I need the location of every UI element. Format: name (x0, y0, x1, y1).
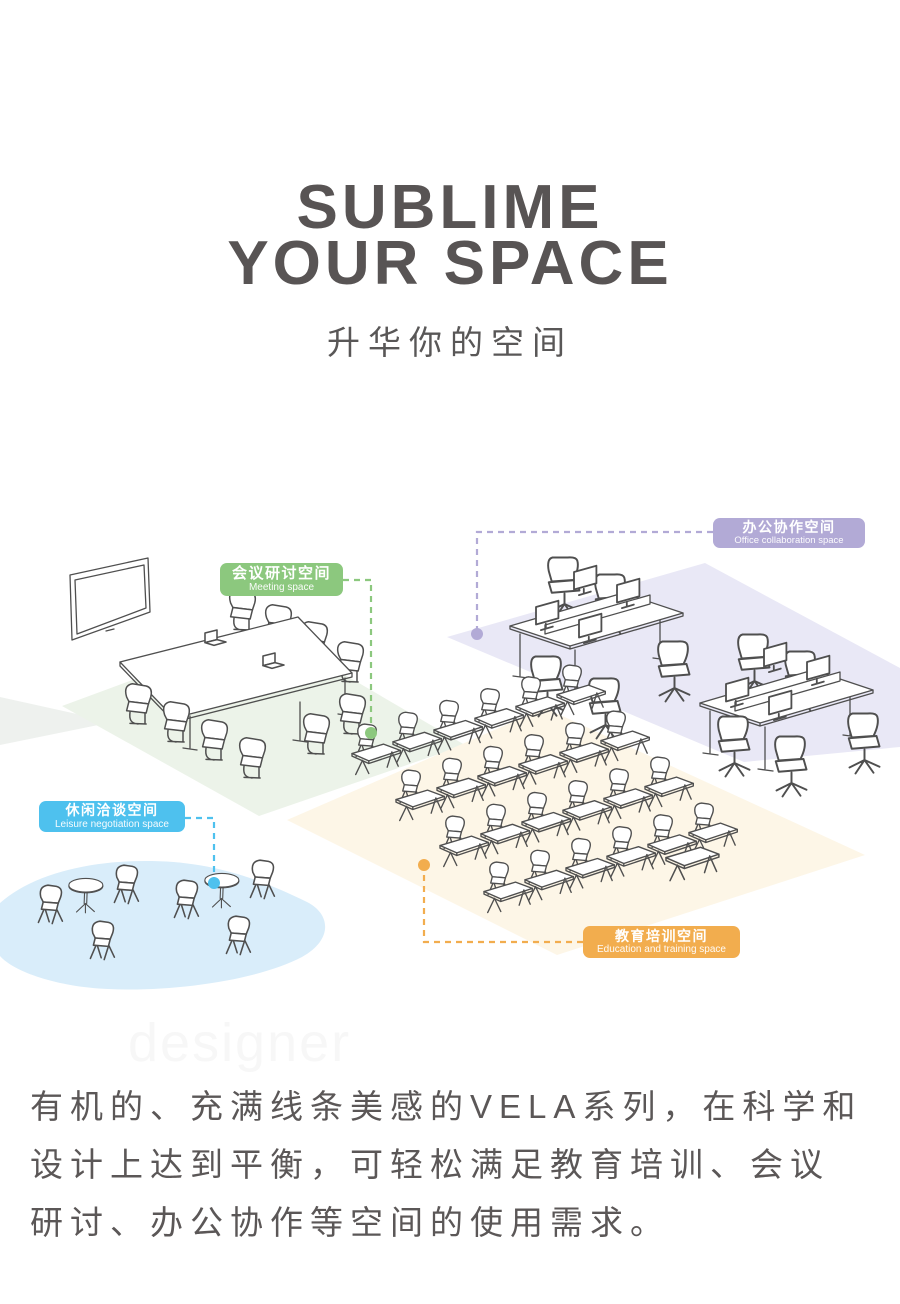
office-space-label-zh: 办公协作空间 (713, 520, 865, 535)
education-space-label-zh: 教育培训空间 (583, 929, 740, 944)
description-line: 设计上达到平衡，可轻松满足教育培训、会议 (30, 1136, 880, 1194)
education-space-label-en: Education and training space (583, 945, 740, 955)
meeting-space-label: 会议研讨空间 Meeting space (220, 563, 343, 596)
meeting-space-label-zh: 会议研讨空间 (220, 566, 343, 583)
meeting-dot (365, 727, 377, 739)
leisure-dot (208, 877, 220, 889)
leisure-floor (0, 861, 325, 990)
education-dot (418, 859, 430, 871)
education-space-label: 教育培训空间 Education and training space (583, 926, 740, 958)
leisure-space-label-en: Leisure negotiation space (39, 820, 185, 830)
meeting-space-label-en: Meeting space (220, 583, 343, 593)
leisure-space-label: 休闲洽谈空间 Leisure negotiation space (39, 801, 185, 832)
office-space-label-en: Office collaboration space (713, 536, 865, 546)
designer-watermark: designer (128, 1012, 351, 1074)
product-detail-page: SUBLIME YOUR SPACE 升华你的空间 (0, 0, 900, 1304)
description-line: 研讨、办公协作等空间的使用需求。 (30, 1194, 880, 1252)
leisure-space-label-zh: 休闲洽谈空间 (39, 803, 185, 818)
office-dot (471, 628, 483, 640)
description-paragraph: 有机的、充满线条美感的VELA系列，在科学和 设计上达到平衡，可轻松满足教育培训… (30, 1078, 880, 1252)
description-line: 有机的、充满线条美感的VELA系列，在科学和 (30, 1078, 880, 1136)
office-space-label: 办公协作空间 Office collaboration space (713, 518, 865, 548)
wall-screen (70, 558, 150, 640)
